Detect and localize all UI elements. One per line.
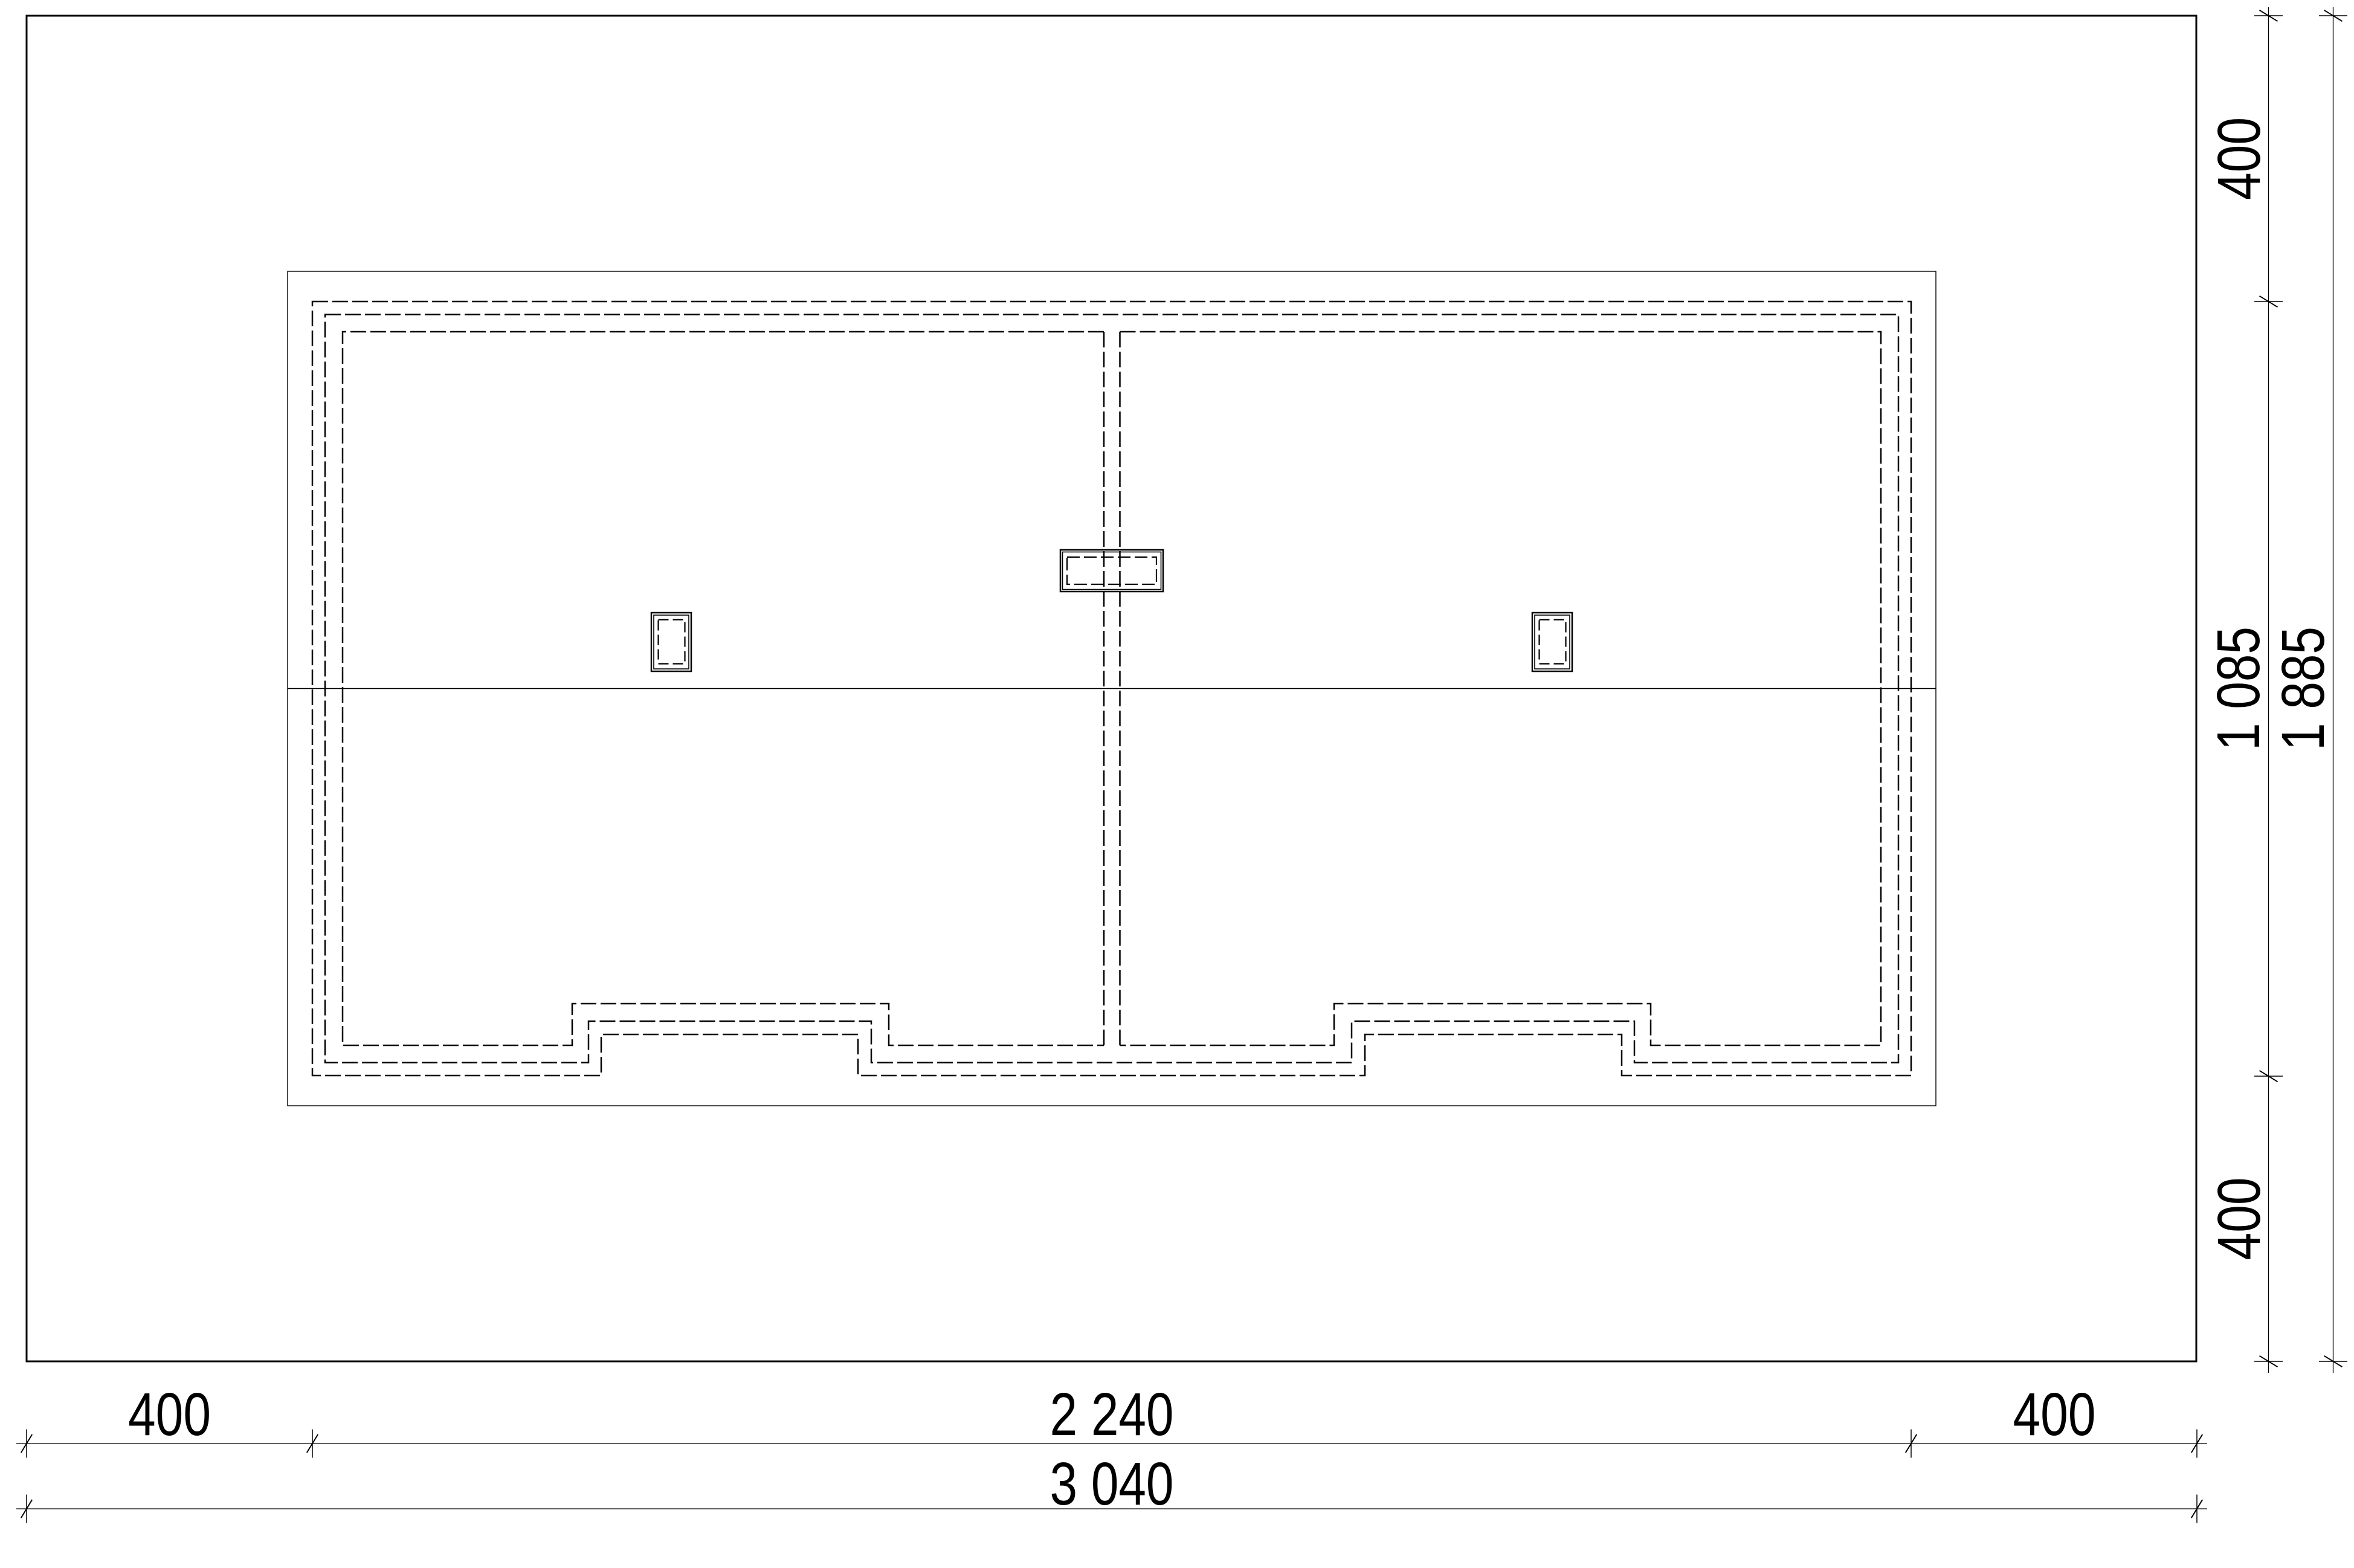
svg-text:400: 400 <box>2205 117 2273 200</box>
svg-text:1 085: 1 085 <box>2205 627 2272 750</box>
svg-text:3 040: 3 040 <box>1050 1450 1174 1518</box>
svg-text:400: 400 <box>2013 1381 2096 1448</box>
svg-text:1 885: 1 885 <box>2269 627 2337 750</box>
svg-text:400: 400 <box>2205 1178 2273 1260</box>
svg-text:400: 400 <box>128 1381 211 1448</box>
svg-text:2 240: 2 240 <box>1050 1381 1174 1448</box>
